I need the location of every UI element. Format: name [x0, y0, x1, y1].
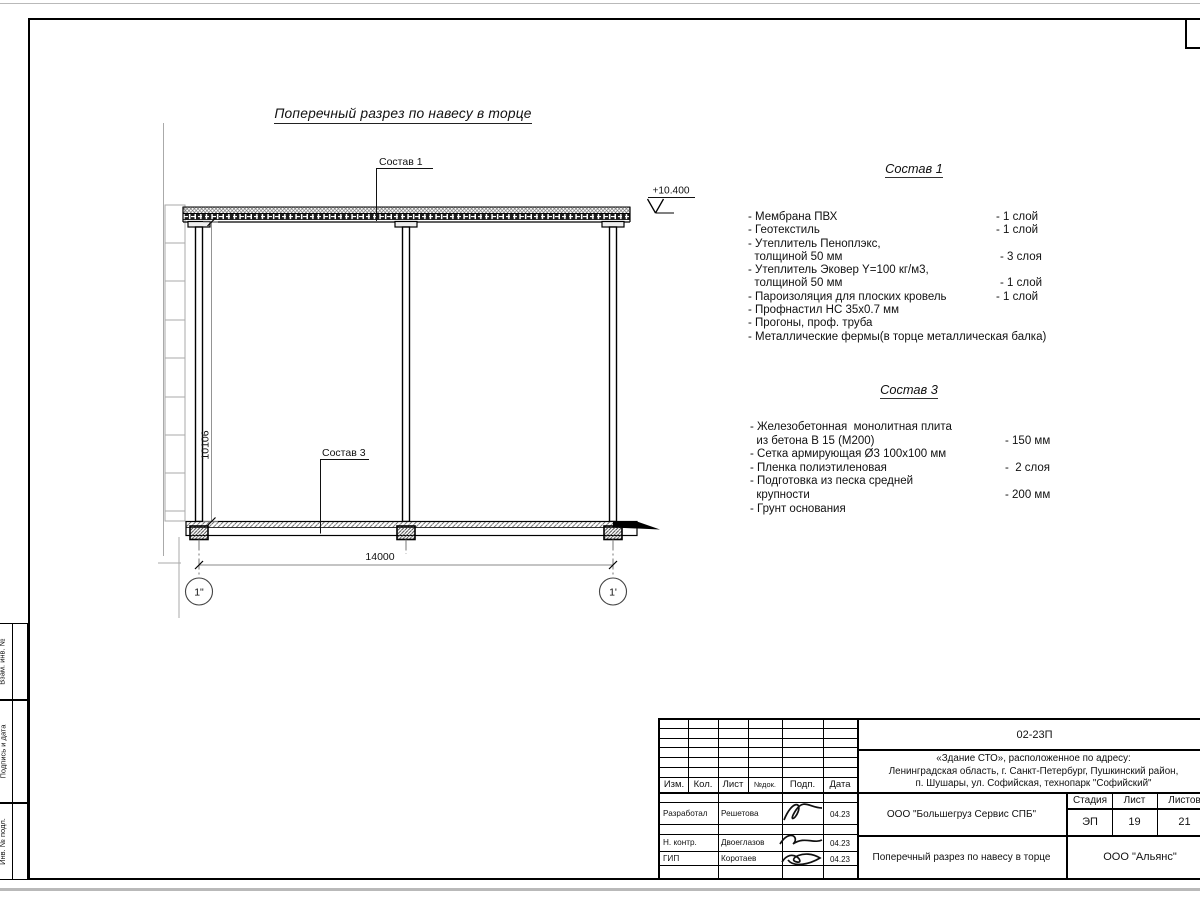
tb-name: Двоеглазов: [721, 834, 781, 851]
tb-col-izm: Изм.: [660, 777, 688, 792]
ground-slab: [186, 522, 660, 536]
spec-sostav3-title: Состав 3: [832, 381, 986, 399]
column-shaft: [610, 227, 617, 522]
spec-item: - Геотекстиль- 1 слой: [748, 224, 1200, 237]
spec-item: толщиной 50 мм- 3 слоя: [748, 251, 1200, 264]
column-capital: [395, 222, 417, 228]
spec-item: - Прогоны, проф. труба: [748, 317, 1200, 330]
leader-sostav3: Состав 3: [320, 447, 369, 534]
foundation-pad: [190, 526, 208, 540]
tb-role: Разработал: [663, 802, 718, 824]
roof-assembly: [183, 207, 630, 222]
tb-firm: ООО "Альянс": [1068, 836, 1200, 878]
height-dimension-text: 10106: [200, 430, 212, 459]
tb-address: «Здание СТО», расположенное по адресу: Л…: [859, 753, 1200, 791]
elevation-mark: +10.400: [648, 186, 696, 214]
foundation-pad: [604, 526, 622, 540]
tb-col-data: Дата: [823, 777, 857, 792]
foundation-pad: [397, 526, 415, 540]
spec-item: - Мембрана ПВХ- 1 слой: [748, 211, 1200, 224]
spec-item: - Подготовка из песка средней: [750, 475, 1200, 489]
end-wall-ladder: [165, 205, 185, 521]
column-shaft: [196, 227, 203, 522]
tb-col-kol: Кол.: [688, 777, 718, 792]
column-shaft: [403, 227, 410, 522]
spec-item: крупности- 200 мм: [750, 489, 1200, 503]
tb-doc-code: 02-23П: [857, 720, 1200, 749]
tb-sheet-value: 19: [1112, 808, 1157, 835]
spec-item: толщиной 50 мм- 1 слой: [748, 277, 1200, 290]
tb-date: 04.23: [823, 837, 857, 849]
tb-stage-value: ЭП: [1068, 808, 1112, 835]
spec-item: из бетона В 15 (М200)- 150 мм: [750, 435, 1200, 449]
spec-item: - Профнастил НС 35х0.7 мм: [748, 304, 1200, 317]
tb-org: ООО "Большегруз Сервис СПБ": [857, 794, 1066, 835]
tb-doc-title: Поперечный разрез по навесу в торце: [857, 836, 1066, 878]
spec-item: - Пароизоляция для плоских кровель- 1 сл…: [748, 291, 1200, 304]
tb-date: 04.23: [823, 853, 857, 865]
spec-item: - Сетка армирующая Ø3 100х100 мм: [750, 448, 1200, 462]
spec-sostav1-title: Состав 1: [837, 160, 991, 178]
axis-right-label: 1': [609, 587, 617, 599]
column-capital: [602, 222, 624, 228]
tb-col-list: Лист: [718, 777, 748, 792]
axis-bubbles: 1" 1': [186, 578, 627, 605]
spec-item: - Утеплитель Пеноплэкс,: [748, 238, 1200, 251]
signature-razrabotal: [780, 796, 825, 828]
tb-sheets-label: Листов: [1157, 792, 1200, 808]
tb-date: 04.23: [823, 808, 857, 820]
width-dimension: 14000: [195, 540, 617, 579]
leader-sostav1-label: Состав 1: [379, 156, 423, 168]
width-dimension-text: 14000: [365, 551, 394, 563]
title-block: Изм. Кол. Лист №док. Подп. Дата Разработ…: [658, 718, 1200, 880]
tb-col-ndok: №док.: [748, 777, 782, 792]
signature-gip-nkontr: [776, 830, 826, 870]
spec-item: - Грунт основания: [750, 503, 1200, 517]
tb-role: Н. контр.: [663, 834, 718, 851]
tb-name: Решетова: [721, 802, 781, 824]
tb-name: Коротаев: [721, 851, 781, 865]
roof-insulation-layer: [183, 207, 630, 214]
leader-sostav3-label: Состав 3: [322, 447, 366, 459]
spec-item: - Пленка полиэтиленовая- 2 слоя: [750, 462, 1200, 476]
tb-sheet-label: Лист: [1112, 792, 1157, 808]
elevation-text: +10.400: [652, 186, 689, 197]
spec-item: - Железобетонная монолитная плита: [750, 421, 1200, 435]
columns: [188, 222, 624, 522]
spec-item: - Металлические фермы(в торце металличес…: [748, 331, 1200, 344]
tb-sheets-value: 21: [1157, 808, 1200, 835]
tb-role: ГИП: [663, 851, 718, 865]
spec-item: - Утеплитель Эковер Y=100 кг/м3,: [748, 264, 1200, 277]
tb-col-podp: Подп.: [782, 777, 823, 792]
tb-stage-label: Стадия: [1068, 792, 1112, 808]
drawing-sheet: { "drawing": { "title": "Поперечный разр…: [0, 0, 1200, 900]
axis-left-label: 1": [194, 587, 204, 599]
